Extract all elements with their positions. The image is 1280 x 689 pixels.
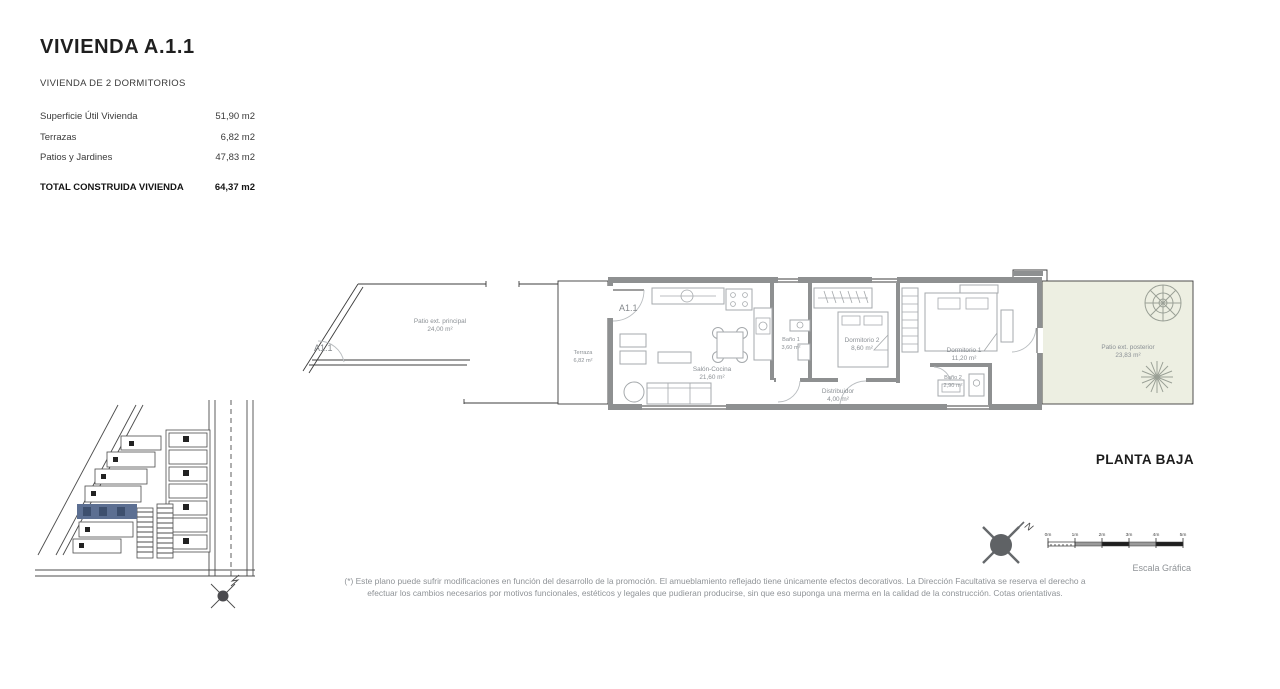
- stairs: [137, 504, 173, 558]
- floor-plan-drawing: Patio ext. principal 24,00 m² Terraza 6,…: [295, 260, 1205, 415]
- scale-bar: 0m 1m 2m 3m 4m 5m Escala Gráfica: [1045, 532, 1191, 573]
- disclaimer: (*) Este plano puede sufrir modificacion…: [300, 576, 1130, 599]
- total-area-row: TOTAL CONSTRUIDA VIVIENDA 64,37 m2: [40, 182, 255, 193]
- room-name: Patio ext. posterior: [1101, 344, 1155, 351]
- room-patio-principal: [303, 281, 558, 404]
- room-area: 6,82 m²: [574, 358, 593, 364]
- room-name: Patio ext. principal: [414, 318, 466, 325]
- area-row-value: 47,83 m2: [215, 152, 255, 163]
- floor-label: PLANTA BAJA: [994, 452, 1194, 467]
- room-area: 23,83 m²: [1115, 352, 1140, 359]
- room-area: 2,90 m²: [944, 383, 963, 389]
- room-terraza: [558, 281, 608, 404]
- area-row-value: 51,90 m2: [215, 111, 255, 122]
- room-name: Dormitorio 1: [947, 347, 982, 354]
- dwelling-subtitle: VIVIENDA DE 2 DORMITORIOS: [40, 78, 186, 89]
- scale-tick: 3m: [1126, 532, 1133, 538]
- area-row: Terrazas 6,82 m2: [40, 132, 255, 143]
- scale-tick: 5m: [1180, 532, 1187, 538]
- plan-annotations: N 0m 1m 2m 3m 4m 5m Escala Gráfica: [975, 512, 1200, 574]
- dining-table: [713, 328, 748, 363]
- site-plan: [33, 400, 265, 612]
- room-name: Baño 1: [782, 337, 800, 343]
- room-area: 21,60 m²: [699, 374, 724, 381]
- room-name: Terraza: [574, 350, 594, 356]
- kitchen-counter: [652, 288, 772, 360]
- unit-entry-label-patio: A1.1: [314, 343, 333, 353]
- room-area: 11,20 m²: [952, 355, 977, 362]
- unit-entry-label-door: A1.1: [619, 303, 638, 313]
- mini-compass-icon: [211, 575, 239, 608]
- area-row-label: Terrazas: [40, 132, 76, 143]
- room-area: 24,00 m²: [427, 326, 452, 333]
- bedroom1-furniture: [902, 285, 1013, 352]
- disclaimer-line: efectuar los cambios necesarios por moti…: [300, 588, 1130, 600]
- room-area: 8,60 m²: [851, 345, 873, 352]
- room-name: Dormitorio 2: [845, 337, 880, 344]
- area-row: Superficie Útil Vivienda 51,90 m2: [40, 111, 255, 122]
- room-name: Baño 2: [944, 375, 962, 381]
- room-patio-posterior: [1042, 281, 1193, 404]
- scale-tick: 2m: [1099, 532, 1106, 538]
- compass-icon: N: [983, 521, 1035, 563]
- page-title: VIVIENDA A.1.1: [40, 36, 195, 59]
- scale-tick: 0m: [1045, 532, 1052, 538]
- area-row-label: Patios y Jardines: [40, 152, 112, 163]
- area-row: Patios y Jardines 47,83 m2: [40, 152, 255, 163]
- highlighted-unit: [77, 504, 137, 519]
- area-row-label: Superficie Útil Vivienda: [40, 111, 138, 122]
- room-name: Salón-Cocina: [693, 366, 732, 373]
- patio-door: [1012, 328, 1043, 353]
- area-row-value: 6,82 m2: [221, 132, 255, 143]
- scale-tick: 4m: [1153, 532, 1160, 538]
- disclaimer-line: (*) Este plano puede sufrir modificacion…: [300, 576, 1130, 588]
- scale-tick: 1m: [1072, 532, 1079, 538]
- total-area-value: 64,37 m2: [215, 182, 255, 193]
- room-name: Distribuidor: [822, 388, 855, 395]
- tree-icon: [1145, 285, 1181, 321]
- floorplan-sheet: VIVIENDA A.1.1 VIVIENDA DE 2 DORMITORIOS…: [0, 0, 1280, 689]
- room-area: 3,60 m²: [782, 345, 801, 351]
- room-area: 4,00 m²: [827, 396, 849, 403]
- total-area-label: TOTAL CONSTRUIDA VIVIENDA: [40, 182, 184, 193]
- scale-caption: Escala Gráfica: [1132, 563, 1191, 573]
- bedroom2-furniture: [814, 288, 888, 367]
